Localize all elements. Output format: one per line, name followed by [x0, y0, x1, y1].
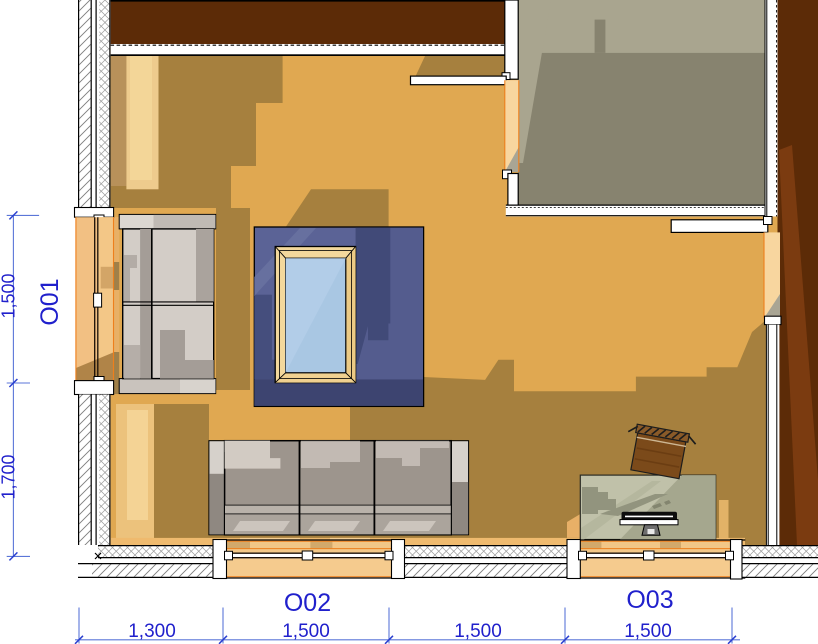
svg-text:O02: O02	[284, 589, 331, 617]
svg-text:O01: O01	[36, 278, 64, 325]
svg-text:1,500: 1,500	[282, 621, 330, 642]
svg-text:1,300: 1,300	[128, 621, 176, 642]
svg-text:1,700: 1,700	[0, 454, 19, 499]
svg-text:1,500: 1,500	[454, 621, 502, 642]
svg-text:1,500: 1,500	[624, 621, 672, 642]
svg-text:1,500: 1,500	[0, 273, 19, 318]
svg-text:O03: O03	[626, 586, 673, 614]
